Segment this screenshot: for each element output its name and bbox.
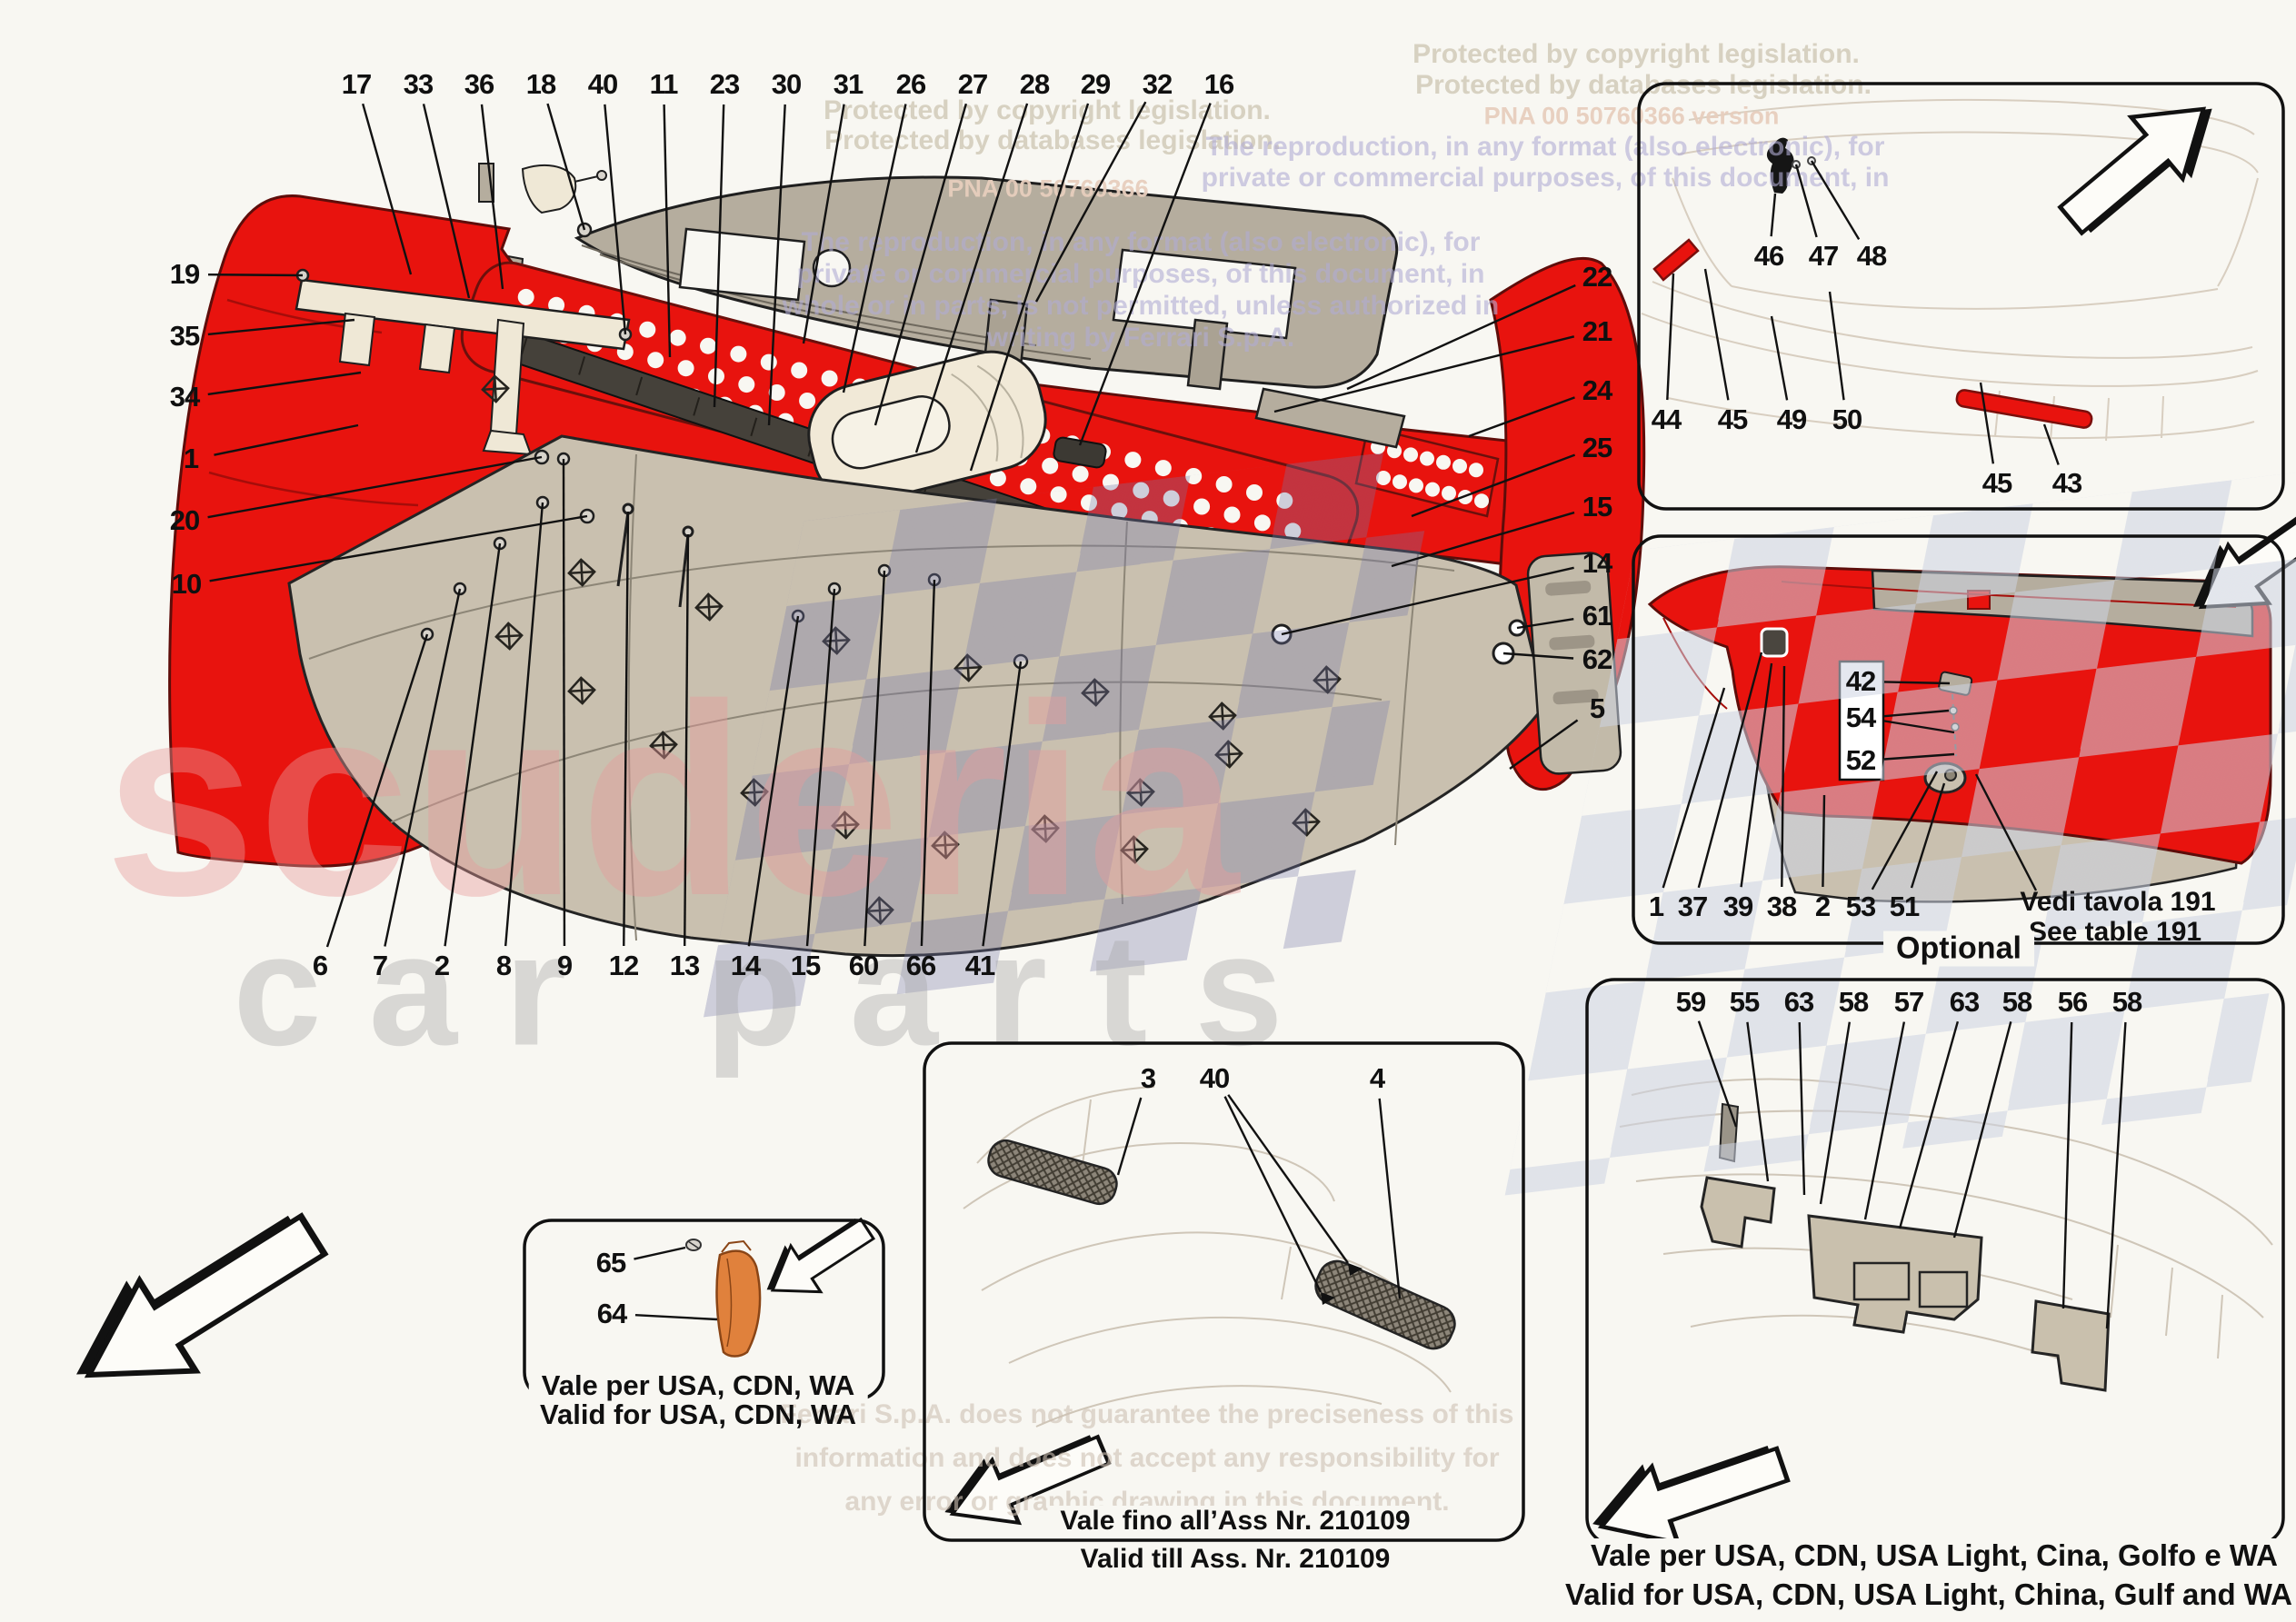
callout-inset-usa-wide-55: 55 [1730, 986, 1759, 1019]
callout-main-bottom-13: 13 [670, 950, 699, 982]
leader-line-4 [1380, 1099, 1400, 1299]
leader-line-48 [1812, 161, 1859, 239]
leader-line-40 [604, 104, 625, 334]
callout-main-left-1: 1 [184, 443, 198, 475]
leader-line-15 [1392, 512, 1574, 566]
callout-inset-usa-65: 65 [596, 1247, 625, 1279]
callout-main-right-62: 62 [1582, 643, 1612, 676]
callout-inset-reflectors-49: 49 [1777, 403, 1806, 436]
inset-box-usa-wide [1587, 980, 2283, 1545]
callout-main-top-17: 17 [342, 68, 371, 101]
inset-box-reflectors [1639, 84, 2283, 509]
leader-line-14 [1282, 568, 1574, 634]
callout-inset-optional-38: 38 [1767, 891, 1796, 923]
leader-line-19 [208, 274, 303, 275]
callout-main-left-10: 10 [172, 568, 201, 601]
leader-line-15 [807, 589, 834, 946]
leader-line-60 [864, 571, 884, 946]
inset-box-ass [924, 1043, 1523, 1540]
callout-main-left-34: 34 [170, 381, 199, 413]
leader-line-53 [1872, 771, 1937, 890]
leader-line-40 [1225, 1097, 1321, 1292]
leader-line-24 [1469, 397, 1574, 436]
leader-line-58 [1821, 1022, 1850, 1204]
leader-line-64 [635, 1315, 717, 1319]
callout-inset-usa-64: 64 [597, 1298, 626, 1330]
leader-line-66 [922, 580, 934, 946]
callout-main-top-16: 16 [1204, 68, 1233, 101]
leader-line-27 [875, 104, 966, 425]
leader-line-43 [2044, 424, 2059, 464]
callout-main-bottom-2: 2 [434, 950, 449, 982]
leader-line-33 [424, 104, 469, 298]
callout-main-bottom-66: 66 [906, 950, 935, 982]
leader-line-21 [1274, 336, 1574, 412]
caption-optional: Optional [1883, 931, 2034, 967]
callout-main-left-19: 19 [170, 258, 199, 291]
callout-main-top-23: 23 [710, 68, 739, 101]
callout-main-top-18: 18 [526, 68, 555, 101]
leader-line-34 [208, 373, 361, 394]
callout-main-top-40: 40 [588, 68, 617, 101]
callout-inset-usa-wide-58: 58 [2112, 986, 2141, 1019]
callout-main-top-11: 11 [650, 68, 678, 101]
leader-line-13 [684, 534, 688, 946]
callout-main-top-27: 27 [958, 68, 987, 101]
leader-line-36 [482, 104, 503, 289]
leader-line-63 [1900, 1021, 1958, 1229]
leader-line-5 [1510, 720, 1578, 769]
leader-line-9 [564, 459, 564, 946]
leader-line-57 [1865, 1022, 1904, 1219]
callout-inset-optional-51: 51 [1890, 891, 1919, 923]
callout-inset-optional-53: 53 [1846, 891, 1875, 923]
callout-main-top-36: 36 [464, 68, 494, 101]
leader-line-35 [208, 320, 354, 334]
leader-line-3 [1118, 1098, 1141, 1175]
callout-inset-reflectors-44: 44 [1652, 403, 1681, 436]
callout-inset-reflectors-48: 48 [1857, 240, 1886, 273]
leader-line-20 [208, 457, 542, 517]
callout-inset-usa-wide-59: 59 [1676, 986, 1705, 1019]
callout-inset-usa-wide-63: 63 [1950, 986, 1979, 1019]
leader-line-54 [1884, 721, 1954, 732]
callout-inset-usa-wide-58: 58 [1839, 986, 1868, 1019]
callout-main-top-30: 30 [772, 68, 801, 101]
caption-usa-wide-it: Vale per USA, CDN, USA Light, Cina, Golf… [1578, 1538, 2291, 1573]
leader-line-2 [445, 543, 500, 946]
leader-line-29 [971, 104, 1088, 471]
callout-main-bottom-15: 15 [791, 950, 820, 982]
callout-main-top-28: 28 [1020, 68, 1049, 101]
callout-inset-optional-42: 42 [1846, 665, 1875, 698]
callout-inset-optional-54: 54 [1846, 702, 1875, 734]
callout-inset-reflectors-47: 47 [1809, 240, 1838, 273]
leader-line-18 [547, 104, 584, 230]
leader-line-1 [1663, 688, 1724, 888]
leader-line-2 [1822, 795, 1824, 887]
caption-usa-wide-en: Valid for USA, CDN, USA Light, China, Gu… [1565, 1577, 2292, 1612]
callout-main-bottom-7: 7 [373, 950, 387, 982]
leader-line-63 [1800, 1022, 1804, 1195]
callout-inset-optional-1: 1 [1649, 891, 1663, 923]
callout-main-top-33: 33 [404, 68, 433, 101]
leader-line-65 [634, 1248, 685, 1259]
leader-line-8 [505, 503, 543, 946]
callout-main-right-61: 61 [1582, 600, 1612, 632]
callout-inset-optional-2: 2 [1815, 891, 1830, 923]
callout-main-bottom-41: 41 [965, 950, 994, 982]
callout-main-right-22: 22 [1582, 261, 1612, 294]
callout-inset-usa-wide-58: 58 [2002, 986, 2031, 1019]
callout-inset-reflectors-46: 46 [1754, 240, 1783, 273]
callout-inset-usa-wide-63: 63 [1784, 986, 1813, 1019]
callout-main-bottom-6: 6 [313, 950, 327, 982]
leader-line-28 [916, 104, 1027, 453]
caption-vedi-tavola: Vedi tavola 191 [2020, 887, 2215, 918]
callout-main-right-15: 15 [1582, 491, 1612, 523]
caption-ass-en: Valid till Ass. Nr. 210109 [1081, 1544, 1391, 1575]
vedi-tavola-leader [1976, 774, 2036, 891]
callout-main-right-25: 25 [1582, 432, 1612, 464]
caption-usa-it: Vale per USA, CDN, WA [529, 1369, 868, 1402]
leader-line-46 [1772, 194, 1775, 236]
caption-ass-it: Vale fino all’Ass Nr. 210109 [1047, 1506, 1423, 1537]
leader-line-49 [1772, 316, 1787, 400]
parts-diagram-page: scuderia car parts Protected by copyrigh… [0, 0, 2296, 1622]
leader-line-42 [1884, 682, 1950, 683]
callout-main-bottom-14: 14 [731, 950, 760, 982]
leader-line-61 [1517, 619, 1573, 628]
callout-main-right-21: 21 [1582, 315, 1612, 348]
callout-main-top-29: 29 [1081, 68, 1110, 101]
callout-inset-ass-40: 40 [1200, 1062, 1229, 1095]
leader-line-54 [1884, 711, 1949, 716]
callout-main-bottom-12: 12 [609, 950, 638, 982]
leader-line-45 [1705, 269, 1728, 400]
callout-inset-ass-3: 3 [1141, 1062, 1155, 1095]
leader-line-44 [1667, 274, 1673, 400]
leader-line-7 [384, 589, 460, 946]
leader-line-10 [210, 516, 587, 581]
leader-line-50 [1830, 292, 1844, 400]
callout-main-top-31: 31 [834, 68, 863, 101]
leader-line-31 [804, 104, 844, 343]
callout-inset-reflectors-43: 43 [2052, 467, 2081, 500]
leader-line-12 [624, 512, 628, 946]
callout-main-right-14: 14 [1582, 547, 1612, 580]
caption-usa-en: Valid for USA, CDN, WA [540, 1398, 856, 1431]
leader-line-55 [1747, 1022, 1768, 1181]
leader-line-52 [1884, 754, 1954, 760]
leader-line-51 [1912, 783, 1944, 888]
callout-inset-optional-39: 39 [1723, 891, 1752, 923]
callout-inset-reflectors-45: 45 [1718, 403, 1747, 436]
callout-main-bottom-60: 60 [849, 950, 878, 982]
callout-main-bottom-8: 8 [496, 950, 511, 982]
leader-line-16 [1080, 104, 1211, 445]
callout-main-right-24: 24 [1582, 374, 1612, 407]
leader-line-11 [664, 104, 670, 357]
leader-line-45 [1981, 383, 1993, 463]
leader-line-59 [1699, 1021, 1736, 1127]
callout-inset-optional-37: 37 [1678, 891, 1707, 923]
leader-line-17 [363, 104, 411, 274]
callout-main-right-5: 5 [1590, 692, 1604, 725]
callout-inset-usa-wide-56: 56 [2058, 986, 2087, 1019]
callout-main-top-26: 26 [896, 68, 925, 101]
leader-line-58 [2107, 1022, 2125, 1328]
leader-line-56 [2063, 1022, 2071, 1309]
callout-inset-usa-wide-57: 57 [1894, 986, 1923, 1019]
callout-main-left-20: 20 [170, 504, 199, 537]
leader-line-40 [1228, 1095, 1348, 1263]
leader-line-6 [327, 634, 427, 947]
callout-main-top-32: 32 [1143, 68, 1172, 101]
leader-line-58 [1954, 1021, 2011, 1238]
leader-line-39 [1742, 663, 1772, 887]
inset-box-optional [1633, 536, 2283, 943]
leader-line-47 [1796, 164, 1817, 237]
callout-inset-optional-52: 52 [1846, 744, 1875, 777]
callout-inset-reflectors-50: 50 [1832, 403, 1862, 436]
leader-line-41 [983, 662, 1021, 946]
leader-line-30 [769, 104, 785, 425]
leader-line-23 [714, 104, 724, 407]
leader-line-38 [1782, 666, 1784, 887]
leader-line-25 [1412, 455, 1575, 516]
caption-see-table: See table 191 [2029, 917, 2201, 948]
callout-layer [0, 0, 2296, 1622]
callout-main-left-35: 35 [170, 320, 199, 353]
leader-line-32 [1036, 102, 1145, 302]
callout-inset-reflectors-45: 45 [1982, 467, 2011, 500]
leader-line-62 [1503, 653, 1573, 659]
leader-line-37 [1699, 652, 1762, 888]
leader-line-1 [214, 425, 358, 455]
leader-line-22 [1347, 285, 1575, 389]
callout-main-bottom-9: 9 [557, 950, 572, 982]
callout-inset-ass-4: 4 [1370, 1062, 1384, 1095]
leader-line-14 [749, 616, 798, 946]
